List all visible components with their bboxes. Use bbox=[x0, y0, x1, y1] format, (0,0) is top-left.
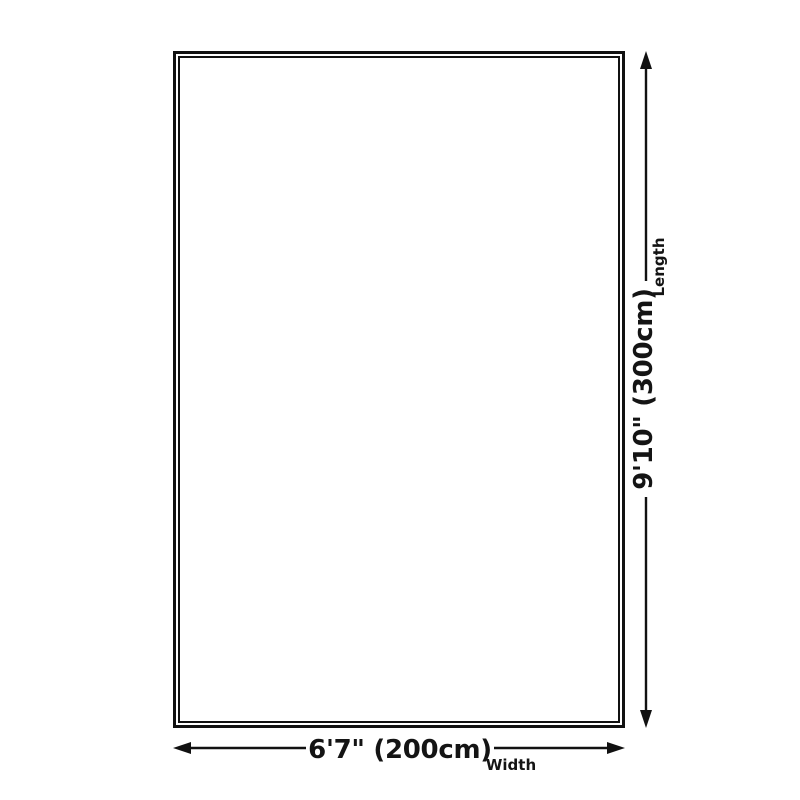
arrow-left-icon bbox=[173, 742, 191, 754]
width-dimension-label: Width bbox=[486, 756, 536, 774]
arrow-right-icon bbox=[607, 742, 625, 754]
rug-outline-inner-border bbox=[178, 56, 620, 723]
length-dimension-value: 9'10" (300cm) bbox=[629, 288, 659, 489]
arrow-down-icon bbox=[640, 710, 652, 728]
width-dimension-value: 6'7" (200cm) bbox=[308, 735, 492, 765]
arrow-up-icon bbox=[640, 51, 652, 69]
length-dimension-label: Length bbox=[650, 238, 668, 297]
rug-dimension-diagram: 6'7" (200cm) Width 9'10" (300cm) Length bbox=[0, 0, 800, 800]
rug-outline bbox=[173, 51, 625, 728]
